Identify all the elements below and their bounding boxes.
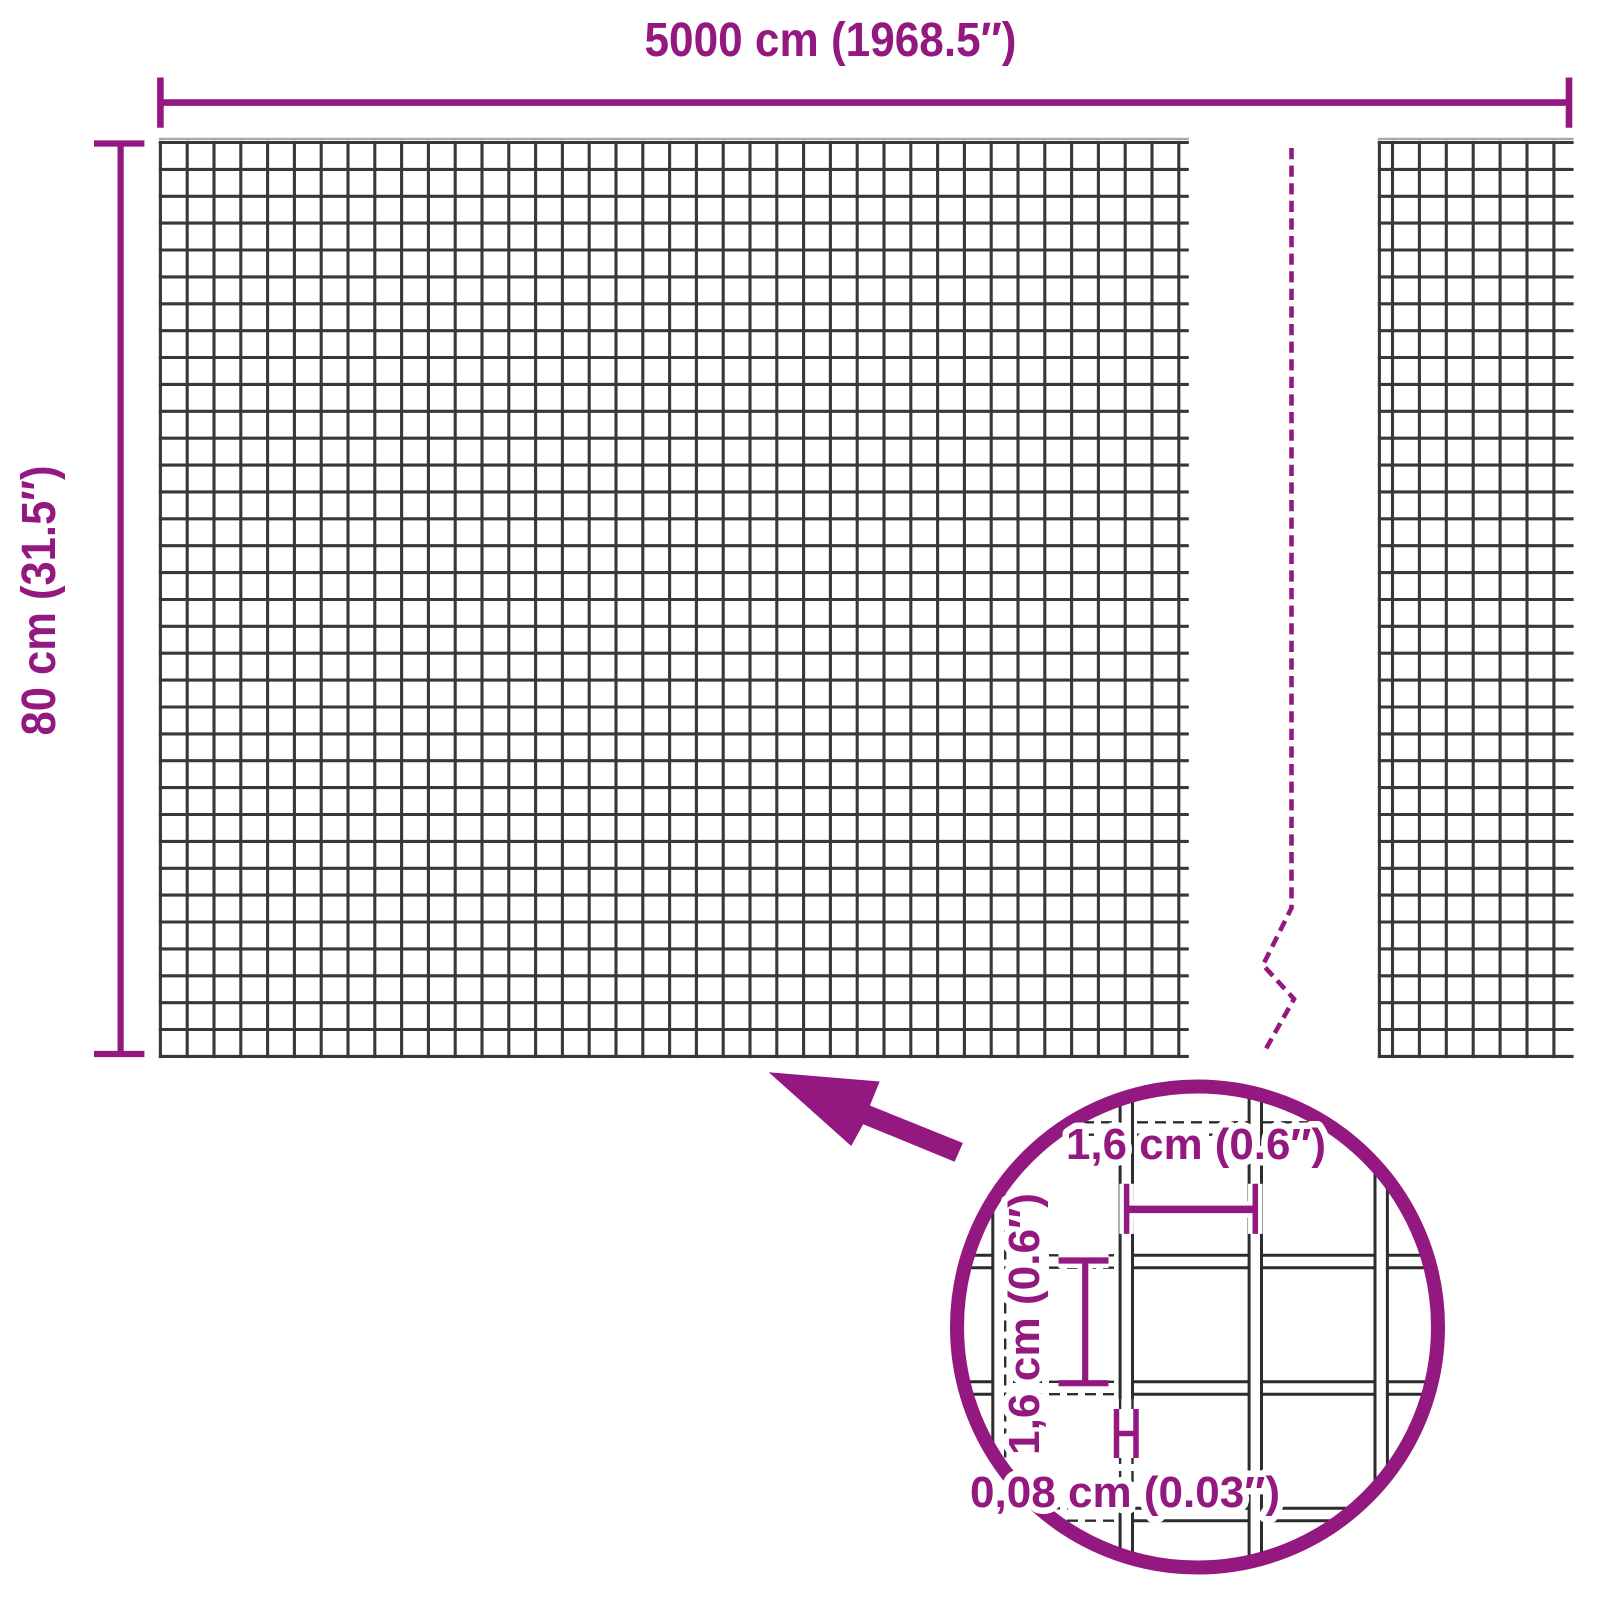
svg-text:1,6 cm (0.6″): 1,6 cm (0.6″) xyxy=(1066,1120,1326,1169)
svg-text:0,08 cm (0.03″): 0,08 cm (0.03″) xyxy=(970,1468,1280,1517)
svg-text:80 cm (31.5″): 80 cm (31.5″) xyxy=(13,466,66,736)
svg-text:5000 cm (1968.5″): 5000 cm (1968.5″) xyxy=(645,14,1017,67)
svg-text:1,6 cm (0.6″): 1,6 cm (0.6″) xyxy=(1000,1193,1049,1455)
